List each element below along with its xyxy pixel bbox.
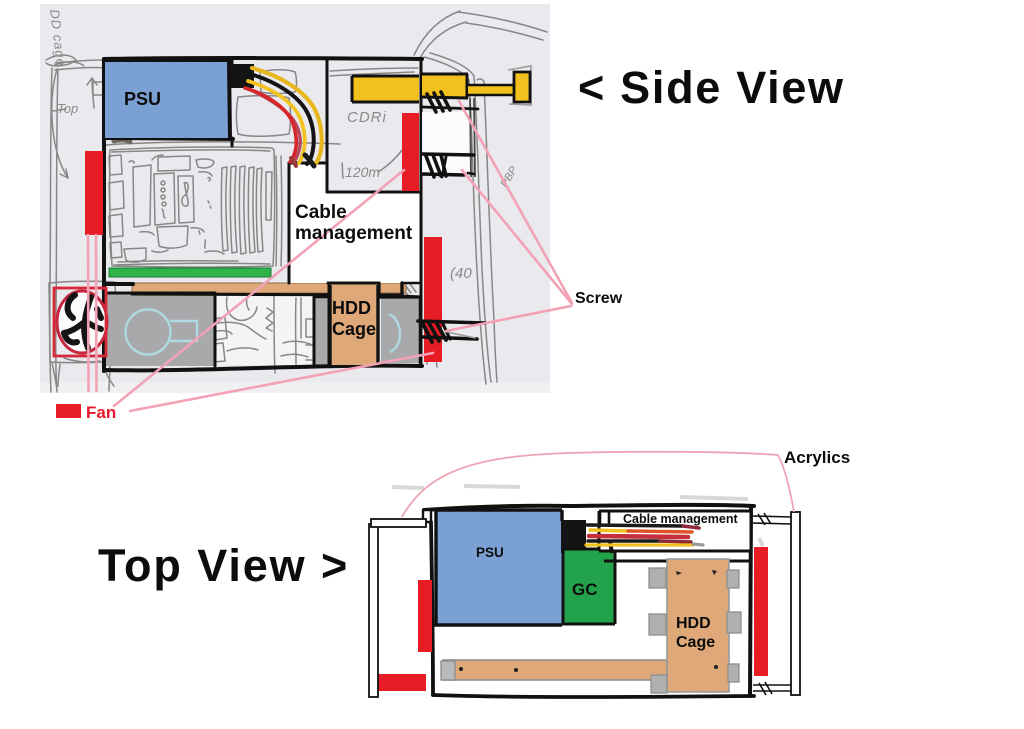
svg-text:Cable management: Cable management [623, 512, 738, 526]
svg-text:HDD: HDD [332, 298, 371, 318]
svg-text:Acrylics: Acrylics [784, 448, 850, 467]
svg-text:HDD: HDD [676, 615, 711, 632]
svg-text:120m: 120m [345, 164, 380, 180]
svg-text:Top: Top [57, 101, 78, 116]
svg-text:Top View >: Top View > [98, 540, 349, 591]
svg-text:PSU: PSU [124, 89, 161, 109]
svg-text:< Side View: < Side View [578, 62, 845, 113]
svg-text:Cage: Cage [332, 319, 376, 339]
svg-text:(40: (40 [450, 265, 472, 282]
svg-text:Screw: Screw [575, 290, 623, 307]
svg-text:Fan: Fan [86, 403, 116, 422]
svg-text:CDRi: CDRi [347, 109, 387, 126]
svg-text:PSU: PSU [476, 545, 504, 560]
svg-text:management: management [295, 223, 413, 244]
svg-text:Cable: Cable [295, 202, 347, 223]
svg-text:Cage: Cage [676, 634, 715, 651]
svg-text:GC: GC [572, 580, 598, 599]
